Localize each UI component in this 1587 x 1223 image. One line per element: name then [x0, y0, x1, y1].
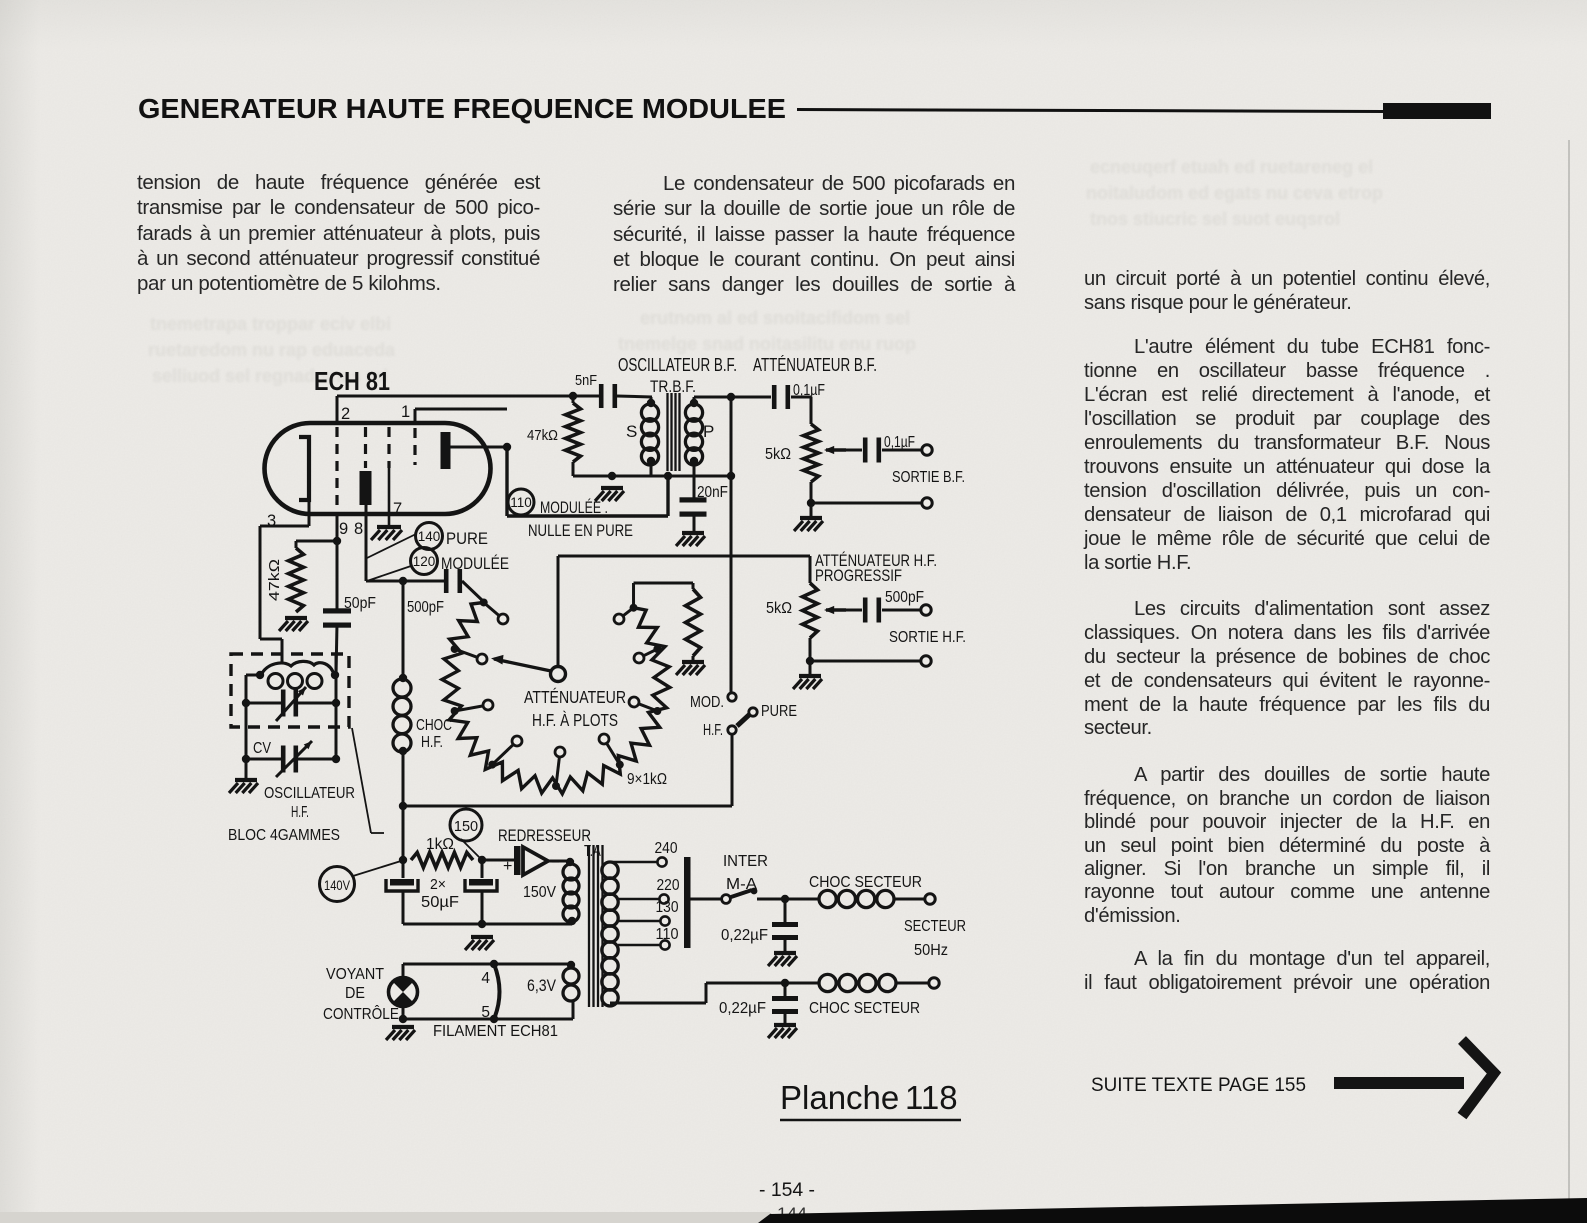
- svg-text:9×1kΩ: 9×1kΩ: [627, 771, 667, 788]
- svg-text:5: 5: [481, 1004, 490, 1021]
- svg-text:+: +: [503, 858, 512, 875]
- svg-text:CONTRÔLE: CONTRÔLE: [323, 1006, 399, 1023]
- svg-text:ATTÉNUATEUR: ATTÉNUATEUR: [524, 687, 626, 707]
- svg-text:4: 4: [481, 970, 490, 987]
- svg-text:BLOC 4GAMMES: BLOC 4GAMMES: [228, 827, 340, 844]
- svg-text:CV: CV: [253, 740, 271, 757]
- svg-text:0,22µF: 0,22µF: [721, 927, 768, 944]
- svg-text:CHOC SECTEUR: CHOC SECTEUR: [809, 874, 922, 891]
- svg-text:8: 8: [354, 520, 363, 538]
- svg-text:220: 220: [657, 877, 680, 894]
- svg-text:500pF: 500pF: [885, 589, 924, 606]
- svg-text:PURE: PURE: [761, 703, 797, 720]
- svg-text:CHOC SECTEUR: CHOC SECTEUR: [809, 1000, 920, 1017]
- svg-text:OSCILLATEUR: OSCILLATEUR: [264, 785, 355, 802]
- svg-text:TR.B.F.: TR.B.F.: [650, 377, 696, 396]
- svg-text:CHOC: CHOC: [416, 717, 452, 734]
- svg-text:M-A: M-A: [726, 876, 757, 893]
- svg-text:5nF: 5nF: [575, 372, 597, 389]
- svg-text:47kΩ: 47kΩ: [266, 559, 283, 601]
- svg-text:H.F.: H.F.: [421, 734, 443, 751]
- svg-text:120: 120: [413, 554, 436, 569]
- svg-text:500pF: 500pF: [407, 599, 444, 616]
- svg-text:SORTIE B.F.: SORTIE B.F.: [892, 469, 965, 486]
- svg-text:1kΩ: 1kΩ: [426, 836, 454, 853]
- svg-text:6,3V: 6,3V: [527, 977, 556, 995]
- svg-text:MODULÉE .: MODULÉE .: [540, 498, 608, 517]
- svg-text:H.F. À PLOTS: H.F. À PLOTS: [532, 710, 618, 730]
- svg-text:150V: 150V: [523, 884, 556, 901]
- svg-text:H.F.: H.F.: [291, 804, 309, 821]
- svg-text:110: 110: [510, 495, 532, 510]
- svg-text:50pF: 50pF: [344, 595, 376, 612]
- svg-text:7: 7: [393, 500, 402, 518]
- svg-text:0,22µF: 0,22µF: [719, 1000, 766, 1017]
- svg-text:OSCILLATEUR B.F.: OSCILLATEUR B.F.: [618, 355, 737, 375]
- svg-text:ATTÉNUATEUR B.F.: ATTÉNUATEUR B.F.: [753, 355, 877, 375]
- svg-text:FILAMENT ECH81: FILAMENT ECH81: [433, 1023, 558, 1040]
- svg-text:MODULÉE: MODULÉE: [441, 554, 509, 573]
- svg-text:9: 9: [339, 520, 348, 538]
- svg-text:2×: 2×: [430, 876, 446, 893]
- svg-text:P: P: [703, 422, 714, 441]
- svg-text:110: 110: [656, 926, 679, 943]
- svg-text:5kΩ: 5kΩ: [766, 600, 792, 617]
- svg-text:Planche: Planche: [780, 1079, 899, 1116]
- svg-text:SORTIE H.F.: SORTIE H.F.: [889, 629, 966, 646]
- svg-text:DE: DE: [345, 985, 365, 1002]
- svg-text:ECH 81: ECH 81: [314, 366, 390, 396]
- svg-text:MOD.: MOD.: [690, 694, 724, 711]
- svg-text:150: 150: [454, 819, 478, 835]
- svg-text:REDRESSEUR: REDRESSEUR: [498, 826, 591, 845]
- svg-text:50µF: 50µF: [421, 894, 459, 911]
- svg-text:SECTEUR: SECTEUR: [904, 918, 966, 935]
- svg-text:140: 140: [418, 529, 441, 544]
- svg-text:PROGRESSIF: PROGRESSIF: [815, 566, 902, 585]
- svg-text:0,1µF: 0,1µF: [793, 382, 825, 399]
- svg-text:47kΩ: 47kΩ: [527, 427, 558, 444]
- svg-text:118: 118: [905, 1079, 958, 1116]
- svg-text:5kΩ: 5kΩ: [765, 446, 791, 463]
- svg-text:- 154 -: - 154 -: [759, 1180, 815, 1201]
- svg-text:S: S: [626, 422, 637, 441]
- svg-text:INTER: INTER: [723, 853, 768, 870]
- svg-text:SUITE TEXTE PAGE 155: SUITE TEXTE PAGE 155: [1091, 1074, 1306, 1096]
- svg-text:H.F.: H.F.: [703, 722, 723, 739]
- svg-text:0,1µF: 0,1µF: [884, 434, 915, 451]
- svg-text:140V: 140V: [324, 877, 351, 893]
- svg-text:130: 130: [656, 899, 679, 916]
- svg-text:PURE: PURE: [446, 530, 488, 548]
- svg-text:1: 1: [401, 403, 410, 421]
- svg-text:2: 2: [341, 405, 350, 423]
- svg-text:20nF: 20nF: [697, 484, 728, 501]
- svg-text:VOYANT: VOYANT: [326, 966, 384, 983]
- svg-text:50Hz: 50Hz: [914, 942, 948, 959]
- svg-text:−: −: [551, 854, 560, 871]
- svg-text:240: 240: [655, 840, 678, 857]
- svg-text:NULLE EN PURE: NULLE EN PURE: [528, 521, 633, 540]
